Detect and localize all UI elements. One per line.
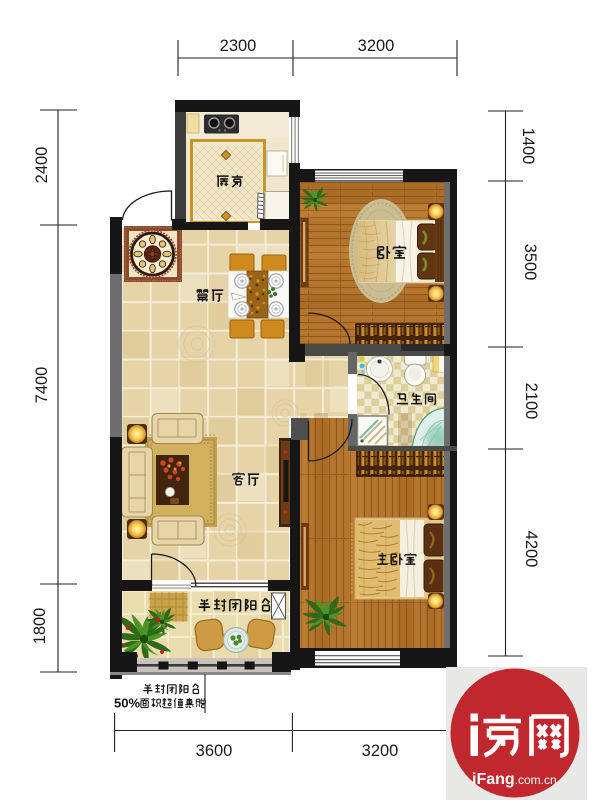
svg-text:2400: 2400 [33, 147, 51, 184]
svg-text:3200: 3200 [358, 37, 395, 55]
svg-text:2300: 2300 [220, 37, 257, 55]
svg-text:iFang.com.cn: iFang.com.cn [472, 771, 557, 788]
svg-text:50%: 50% [114, 696, 140, 711]
svg-text:1400: 1400 [519, 128, 537, 165]
svg-text:4200: 4200 [522, 531, 540, 568]
svg-text:1800: 1800 [31, 608, 49, 645]
svg-text:2100: 2100 [522, 383, 540, 420]
svg-text:3600: 3600 [196, 742, 233, 760]
svg-text:7400: 7400 [33, 367, 51, 404]
svg-text:3500: 3500 [521, 244, 539, 281]
svg-text:3200: 3200 [362, 742, 399, 760]
